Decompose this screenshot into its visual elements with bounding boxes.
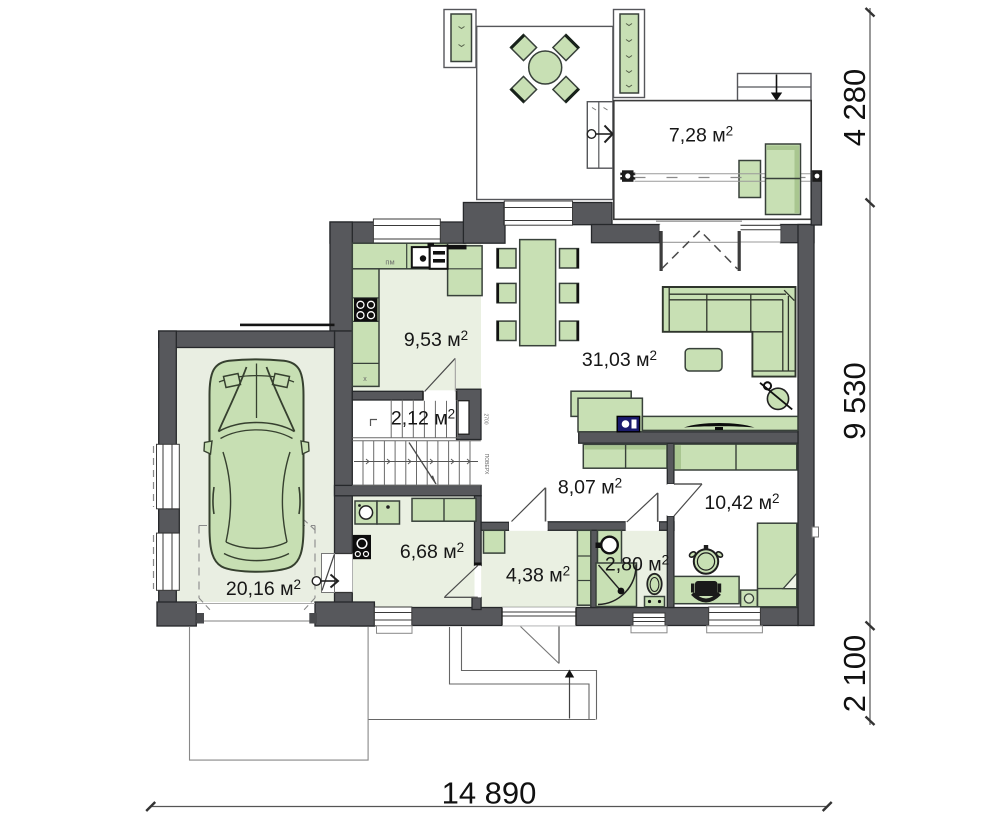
- svg-text:7,28 м2: 7,28 м2: [669, 124, 733, 147]
- svg-text:8,07 м2: 8,07 м2: [558, 476, 622, 499]
- svg-text:14 890: 14 890: [442, 776, 537, 811]
- svg-text:2,12 м2: 2,12 м2: [391, 407, 455, 430]
- svg-text:х: х: [363, 376, 367, 383]
- svg-text:4 280: 4 280: [837, 69, 872, 147]
- svg-text:31,03 м2: 31,03 м2: [582, 348, 657, 371]
- svg-text:9 530: 9 530: [837, 362, 872, 440]
- svg-text:20,16 м2: 20,16 м2: [226, 577, 301, 600]
- svg-text:9,53 м2: 9,53 м2: [404, 328, 468, 351]
- svg-text:6,68 м2: 6,68 м2: [400, 540, 464, 563]
- svg-text:2,80 м2: 2,80 м2: [605, 553, 669, 576]
- svg-text:10,42 м2: 10,42 м2: [704, 491, 779, 514]
- svg-text:ПОВЕРХ: ПОВЕРХ: [483, 454, 489, 475]
- svg-text:2 100: 2 100: [837, 635, 872, 713]
- svg-text:2700: 2700: [483, 413, 489, 424]
- svg-text:пм: пм: [385, 258, 394, 267]
- svg-text:4,38 м2: 4,38 м2: [506, 564, 570, 587]
